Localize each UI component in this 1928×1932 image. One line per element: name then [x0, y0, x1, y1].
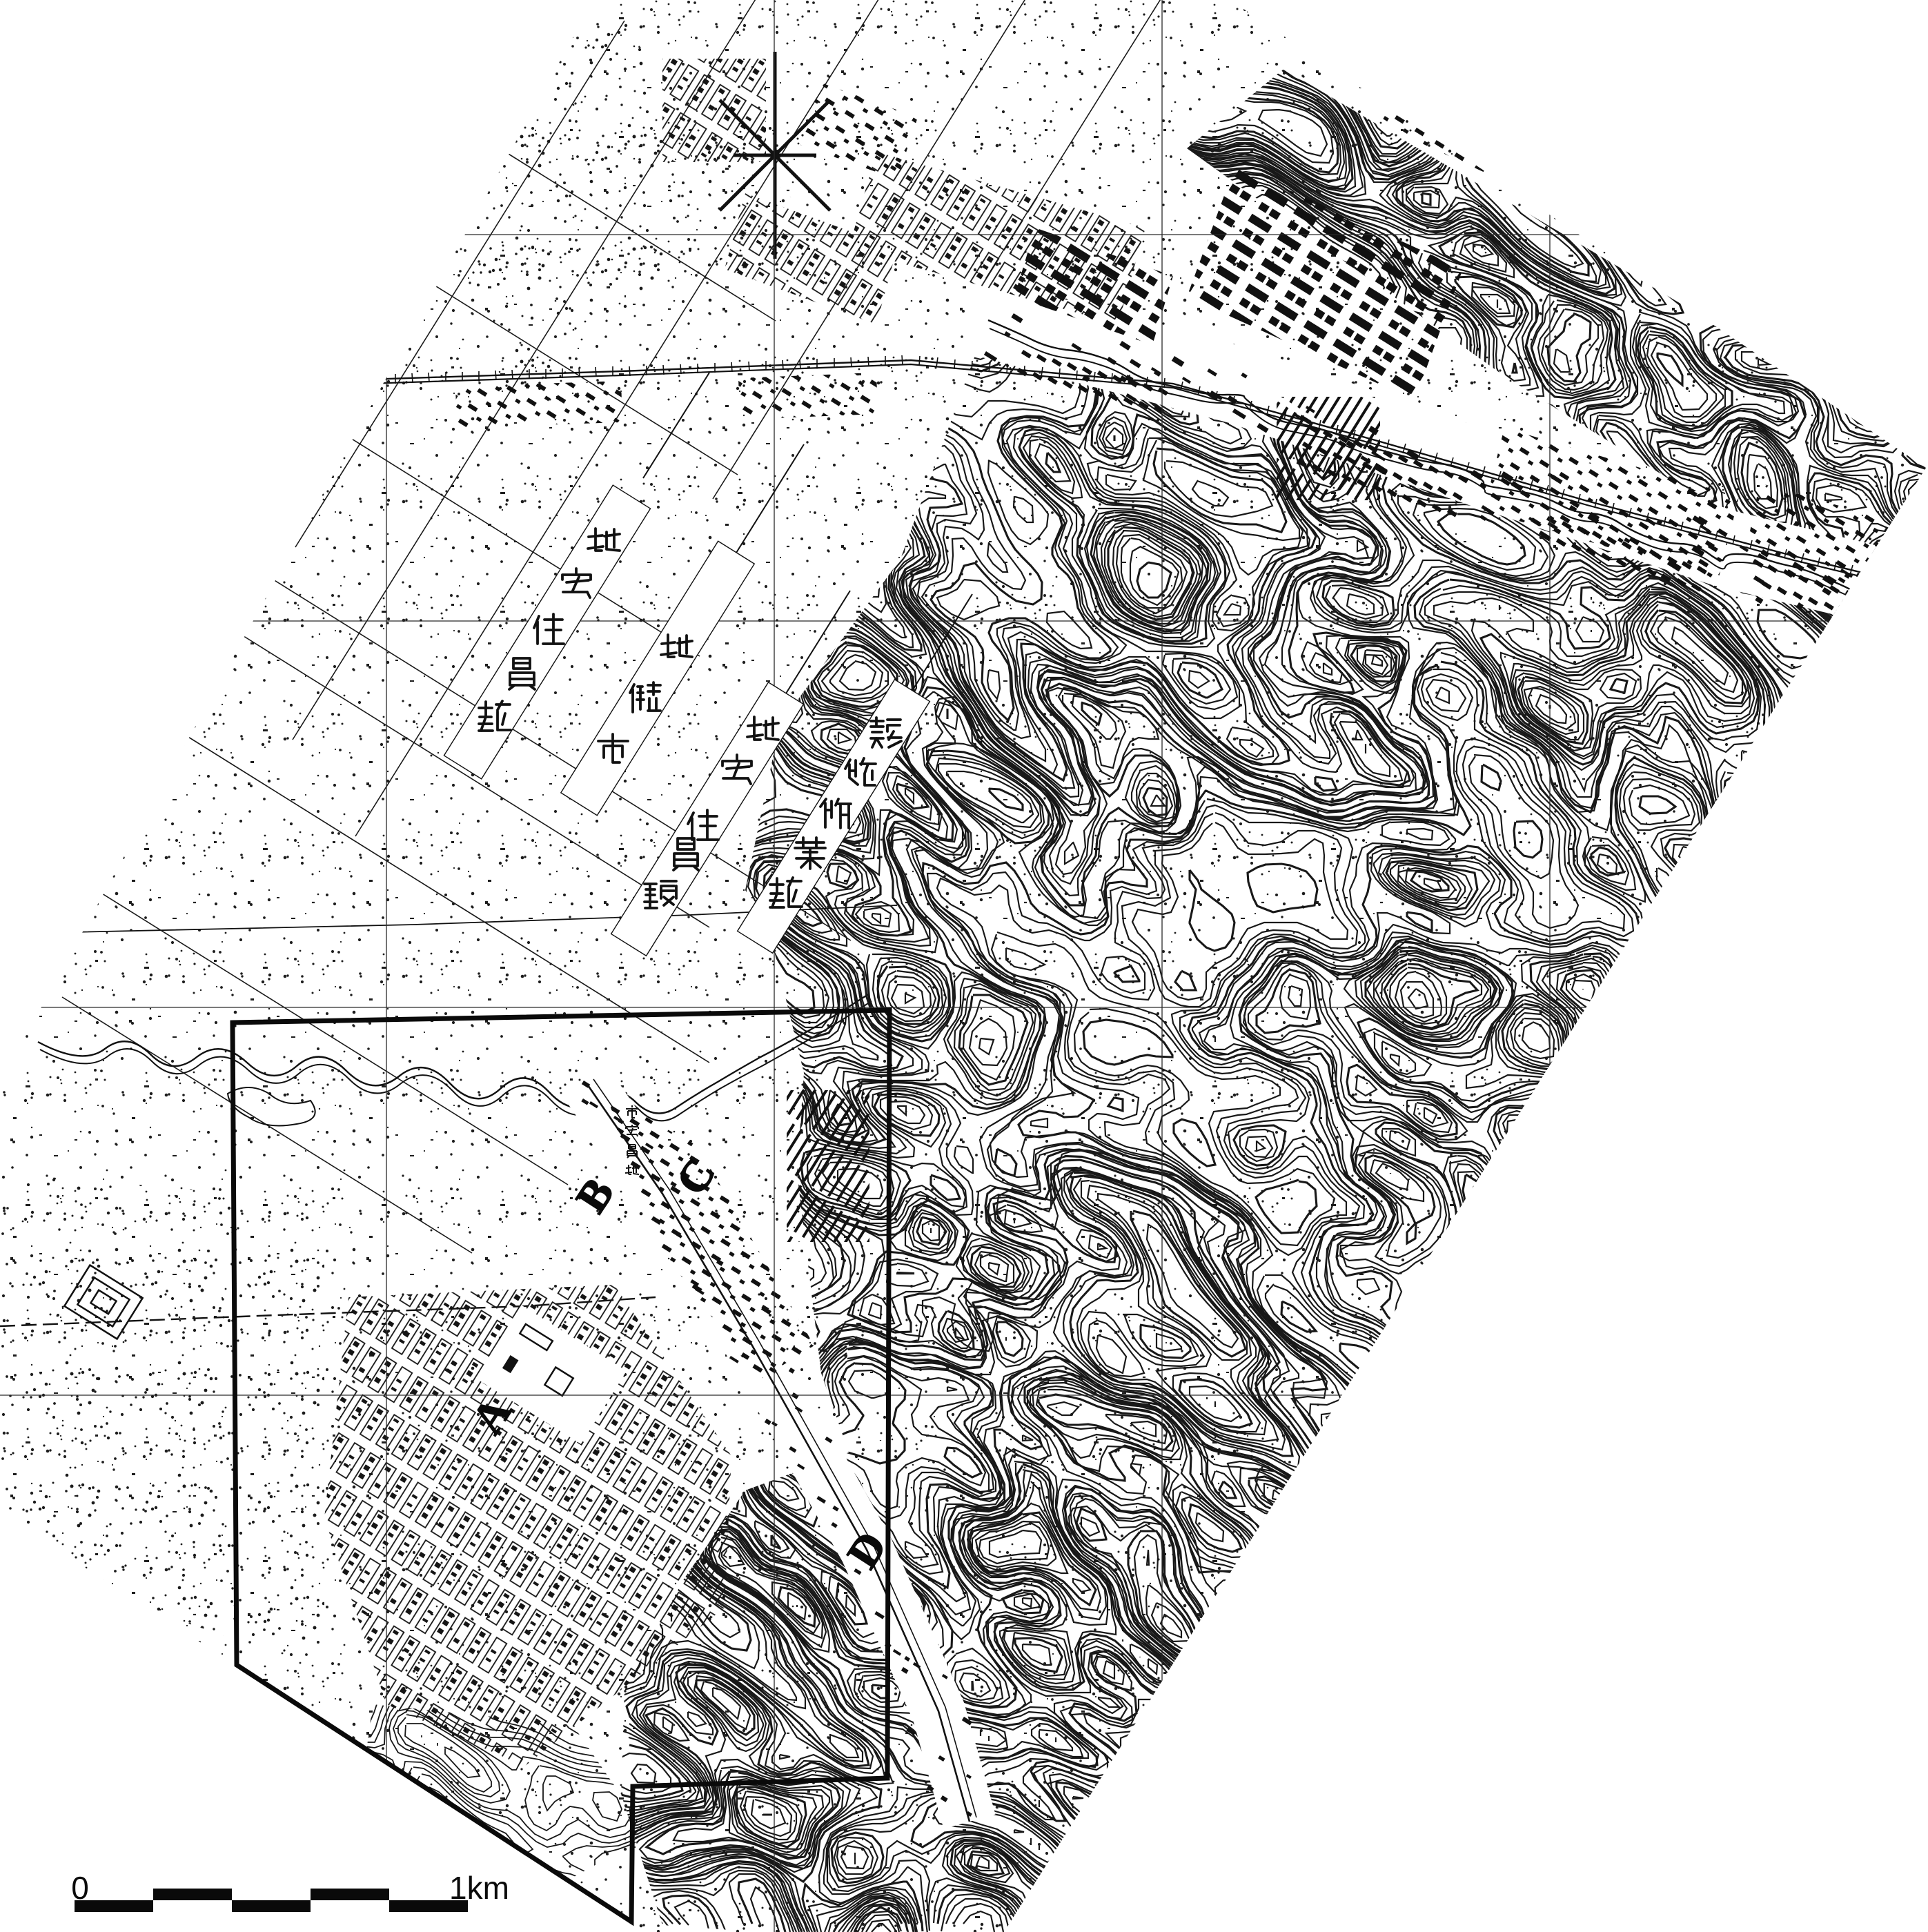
svg-text:0: 0	[71, 1870, 89, 1906]
svg-text:1km: 1km	[449, 1870, 509, 1906]
